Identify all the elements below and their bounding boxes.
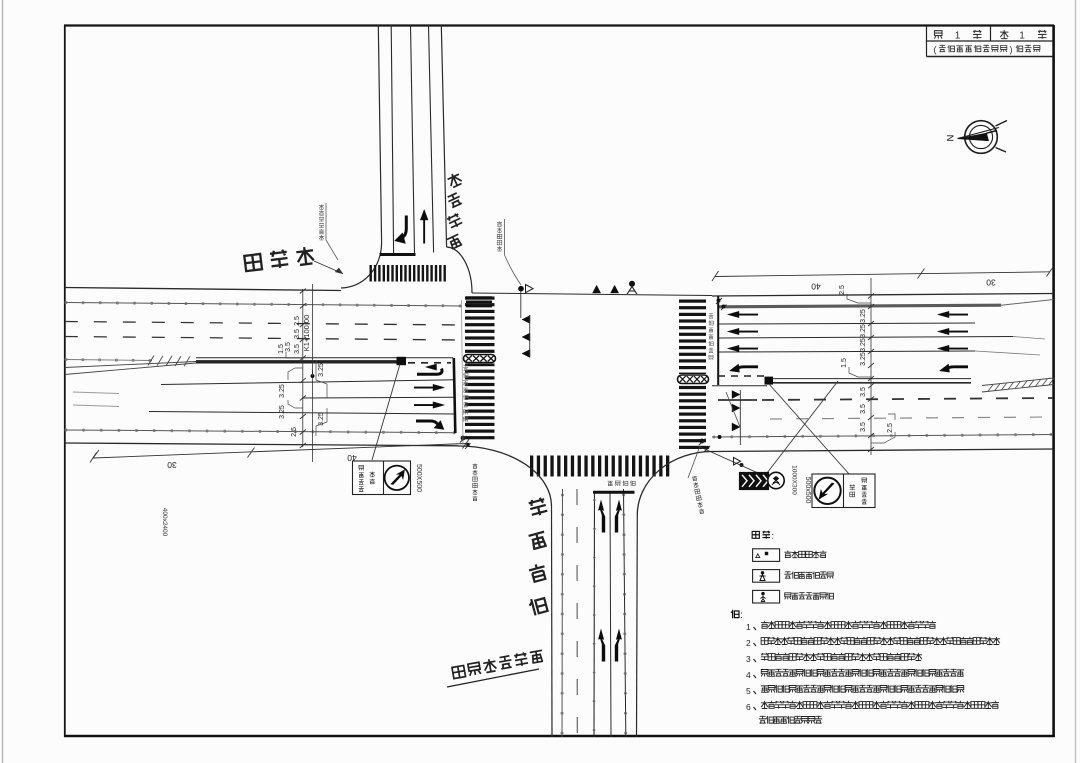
svg-text:500x500: 500x500: [804, 477, 811, 504]
svg-text:5: 5: [746, 686, 751, 696]
svg-text:N: N: [944, 135, 955, 142]
svg-text:30: 30: [167, 460, 177, 470]
svg-text:3.25: 3.25: [279, 405, 286, 419]
svg-text:3: 3: [746, 654, 751, 664]
svg-text:3.5: 3.5: [860, 422, 867, 432]
svg-text:3.5: 3.5: [860, 387, 867, 397]
svg-text:2.5: 2.5: [294, 316, 301, 326]
svg-text:3.5: 3.5: [294, 344, 301, 354]
svg-text:30: 30: [986, 278, 996, 288]
svg-text:1.5: 1.5: [841, 358, 848, 368]
svg-text:6: 6: [746, 702, 751, 712]
svg-text:40: 40: [811, 282, 821, 292]
svg-text:3.5: 3.5: [285, 342, 292, 352]
svg-text:4: 4: [746, 670, 751, 680]
svg-text:1.5: 1.5: [278, 344, 285, 354]
svg-text:3.5: 3.5: [294, 329, 301, 339]
svg-text:3.25: 3.25: [860, 309, 867, 323]
svg-text:(: (: [934, 45, 937, 55]
svg-text::: :: [772, 531, 775, 541]
svg-text:3.25: 3.25: [860, 352, 867, 366]
svg-text:3.25: 3.25: [318, 363, 325, 377]
svg-text:3.25: 3.25: [860, 338, 867, 352]
svg-text:K1+100.00: K1+100.00: [302, 315, 311, 352]
svg-text:400x2400: 400x2400: [161, 508, 168, 537]
svg-text:2: 2: [746, 638, 751, 648]
svg-text:500X500: 500X500: [415, 464, 422, 492]
svg-text:3.5: 3.5: [860, 404, 867, 414]
svg-text:3.25: 3.25: [279, 384, 286, 398]
svg-text::: :: [740, 610, 743, 621]
svg-text:1: 1: [1019, 31, 1025, 42]
svg-text:2.5: 2.5: [291, 427, 298, 437]
svg-text:1: 1: [746, 622, 751, 632]
svg-text:): ): [1010, 45, 1013, 55]
svg-text:2.5: 2.5: [839, 285, 846, 295]
svg-text:1: 1: [955, 31, 961, 42]
svg-text:3.25: 3.25: [860, 324, 867, 338]
svg-text:1000X300: 1000X300: [791, 465, 798, 495]
svg-text:2.5: 2.5: [887, 423, 894, 433]
